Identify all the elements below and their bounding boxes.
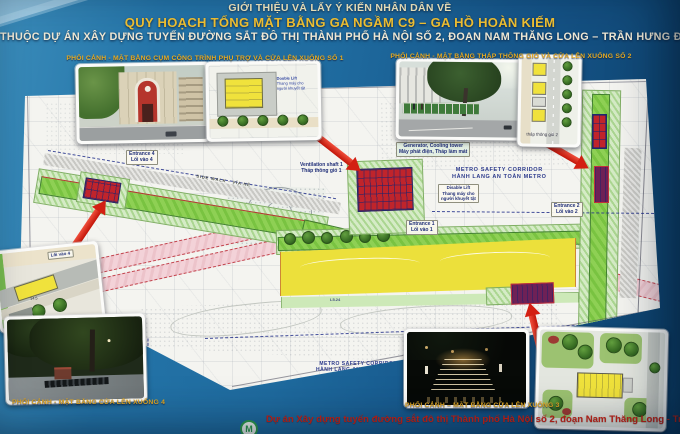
entrance1-label-vi: Lối vào 1	[409, 227, 435, 233]
safety2-label-vi: HÀNH LANG AN TOÀN METRO	[316, 367, 401, 373]
kiosk-footprint	[532, 63, 546, 76]
person-shape	[421, 104, 423, 110]
vent-shaft2-block	[592, 114, 607, 149]
canopy-shape	[623, 378, 633, 393]
doorway	[142, 104, 153, 122]
kiosk-footprint	[532, 109, 546, 122]
tree-icon	[562, 75, 572, 85]
entrance2-label: Entrance 2 Lối vào 2	[551, 202, 583, 217]
dimension-label: L5.24	[330, 297, 340, 302]
tree-icon	[563, 61, 573, 71]
caption-aux-cluster: PHỐI CẢNH - MẶT BẰNG CỤM CÔNG TRÌNH PHỤ …	[40, 55, 370, 62]
plan1-lift-vi: Thang máy cho người khuyết tật	[277, 80, 311, 91]
photo-inset-entrance4	[4, 313, 147, 405]
tree-icon	[29, 316, 144, 371]
entrance2-photo	[399, 61, 521, 137]
footer-project-line: Dự án Xây dựng tuyến đường sắt đô thị Th…	[266, 414, 680, 425]
safety-corridor-label: METRO SAFETY CORRIDOR HÀNH LANG AN TOÀN …	[452, 167, 546, 181]
tree-icon	[562, 89, 572, 99]
kiosk-footprint	[532, 82, 546, 95]
entrance3-footprint	[577, 372, 624, 398]
person-shape	[499, 364, 502, 372]
planning-poster: SIDE WALK - VỈA HÈ L5.24	[0, 0, 680, 434]
entrance4-photo	[7, 316, 144, 402]
safety-label-vi: HÀNH LANG AN TOÀN METRO	[452, 174, 546, 181]
safety-label-en: METRO SAFETY CORRIDOR	[452, 167, 546, 174]
generator-label: Generator, Cooling tower Máy phát điện, …	[396, 142, 470, 157]
tree-icon	[562, 103, 572, 113]
safety-corridor-line	[148, 339, 149, 355]
plan-note: Double Lift Thang máy cho người khuyết t…	[277, 75, 311, 91]
generator-label-vi: Máy phát điện, Tháp làm mát	[399, 149, 467, 155]
entrance4-label-vi: Lối vào 4	[129, 157, 155, 163]
car-shape	[166, 131, 177, 136]
entrance1-photo	[78, 65, 207, 141]
road-shape	[79, 125, 207, 141]
flower-bed	[548, 336, 559, 344]
entrance1-label: Entrance 1 Lối vào 1	[406, 220, 438, 235]
metro-logo: M	[240, 420, 258, 434]
caption-entrance4: PHỐI CẢNH - MẶT BẰNG CỬA LÊN XUỐNG 4	[12, 399, 165, 406]
lift-label-vi2: người khuyết tật	[441, 196, 476, 202]
person-shape	[413, 104, 415, 110]
tree-icon	[52, 297, 67, 312]
distant-light	[425, 346, 428, 349]
poster-title-line1: GIỚI THIỆU VÀ LẤY Ý KIẾN NHÂN DÂN VỀ	[0, 2, 680, 14]
safety-corridor-label2: METRO SAFETY CORRIDOR HÀNH LANG AN TOÀN …	[316, 361, 401, 374]
photo-inset-entrance3	[404, 329, 529, 408]
entrance4-label: Entrance 4 Lối vào 4	[126, 150, 158, 165]
tree-icon	[302, 231, 315, 244]
kiosk-shape	[54, 367, 71, 379]
entrance2-plan: tháp thông gió 2	[520, 58, 578, 145]
dimension-label: 14.5	[30, 296, 38, 301]
entrance1-plan: Double Lift Thang máy cho người khuyết t…	[208, 63, 318, 139]
entrance2-label-vi: Lối vào 2	[554, 209, 580, 215]
canopy-light	[107, 339, 110, 342]
tree-icon	[321, 232, 333, 244]
arch-emblem	[145, 86, 151, 92]
person-shape	[425, 366, 428, 374]
tree-icon	[562, 117, 572, 127]
vent-shaft2-caption: tháp thông gió 2	[526, 132, 558, 138]
vent-shaft1-label: Ventilation shaft 1 Tháp thông gió 1	[300, 162, 343, 175]
aux-cluster-block	[356, 167, 413, 212]
poster-title-line3: THUỘC DỰ ÁN XÂY DỰNG TUYẾN ĐƯỜNG SẮT ĐÔ …	[0, 31, 680, 43]
tree-trunk	[90, 330, 95, 372]
photo-inset-entrance1	[75, 62, 210, 144]
photo-inset-entrance2	[396, 58, 524, 140]
plan-inset-entrance1: Double Lift Thang máy cho người khuyết t…	[205, 60, 321, 142]
disable-lift-label: Disable Lift Thang máy cho người khuyết …	[438, 184, 479, 203]
caption-entrance3: PHỐI CẢNH – MẶT BẰNG CỬA LÊN XUỐNG 3	[405, 402, 560, 409]
entrance2-block	[594, 166, 609, 203]
station-footprint	[225, 78, 264, 109]
utility-box	[532, 97, 546, 107]
caption-vent-tower: PHỐI CẢNH - MẶT BẰNG THÁP THÔNG GIÓ VÀ C…	[380, 53, 642, 60]
vent1-label-vi: Tháp thông gió 1	[300, 168, 343, 174]
scooter-shape	[504, 125, 512, 129]
entrance3-photo-night	[407, 332, 526, 405]
tree-icon	[284, 233, 296, 245]
plan-inset-entrance2: tháp thông gió 2	[517, 54, 582, 147]
building-right	[179, 77, 204, 121]
entrance3-hatch	[486, 287, 514, 306]
poster-title-line2: QUY HOẠCH TỔNG MẶT BẰNG GA NGẦM C9 – GA …	[0, 15, 680, 30]
